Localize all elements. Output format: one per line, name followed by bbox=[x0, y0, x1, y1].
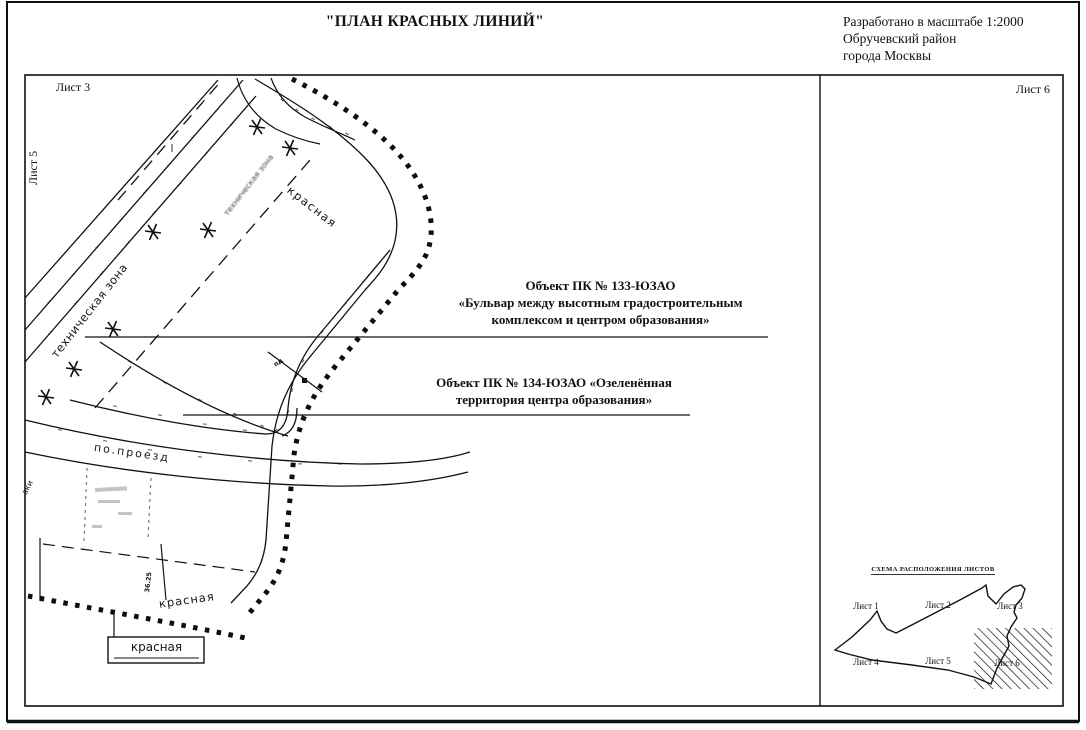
scale-note-line2: Обручевский район bbox=[843, 30, 956, 47]
index-map-title-wrap: СХЕМА РАСПОЛОЖЕНИЯ ЛИСТОВ bbox=[852, 558, 1014, 576]
scan-smudges bbox=[92, 486, 132, 528]
scale-note-line3: города Москвы bbox=[843, 47, 931, 64]
index-sheet-4: Лист 4 bbox=[845, 657, 887, 667]
page-title: "ПЛАН КРАСНЫХ ЛИНИЙ" bbox=[235, 13, 635, 31]
bottom-left-fragments bbox=[40, 144, 255, 637]
tech-zone-band bbox=[25, 80, 310, 408]
index-sheet-5: Лист 5 bbox=[917, 656, 959, 666]
red-lines-plan-page: "ПЛАН КРАСНЫХ ЛИНИЙ" Разработано в масшт… bbox=[0, 0, 1086, 730]
sheet-label-3: Лист 3 bbox=[56, 80, 90, 95]
survey-star-icons bbox=[38, 119, 298, 405]
object-133-line2: «Бульвар между высотным градостроительны… bbox=[418, 294, 783, 311]
scale-note-line1: Разработано в масштабе 1:2000 bbox=[843, 13, 1024, 30]
object-134-line1: Объект ПК № 134-ЮЗАО «Озеленённая bbox=[388, 374, 720, 391]
object-133-line3: комплексом и центром образования» bbox=[418, 311, 783, 328]
callout-object-133: Объект ПК № 133-ЮЗАО «Бульвар между высо… bbox=[418, 277, 783, 328]
index-sheet-6: Лист 6 bbox=[986, 658, 1028, 668]
sheet-label-5: Лист 5 bbox=[26, 151, 41, 185]
plan-drawing bbox=[0, 0, 1086, 730]
index-sheet-1: Лист 1 bbox=[845, 601, 887, 611]
object-133-line1: Объект ПК № 133-ЮЗАО bbox=[418, 277, 783, 294]
index-sheet-2: Лист 2 bbox=[917, 600, 959, 610]
sheet-label-6: Лист 6 bbox=[990, 82, 1050, 97]
krasnaya-legend-label: красная bbox=[110, 640, 203, 654]
callout-object-134: Объект ПК № 134-ЮЗАО «Озеленённая террит… bbox=[388, 374, 720, 408]
index-sheet-3: Лист 3 bbox=[989, 601, 1031, 611]
page-border bbox=[7, 2, 1079, 722]
object-134-line2: территория центра образования» bbox=[388, 391, 720, 408]
red-line-dotted-boundary bbox=[28, 79, 431, 639]
index-map-title: СХЕМА РАСПОЛОЖЕНИЯ ЛИСТОВ bbox=[871, 566, 994, 575]
